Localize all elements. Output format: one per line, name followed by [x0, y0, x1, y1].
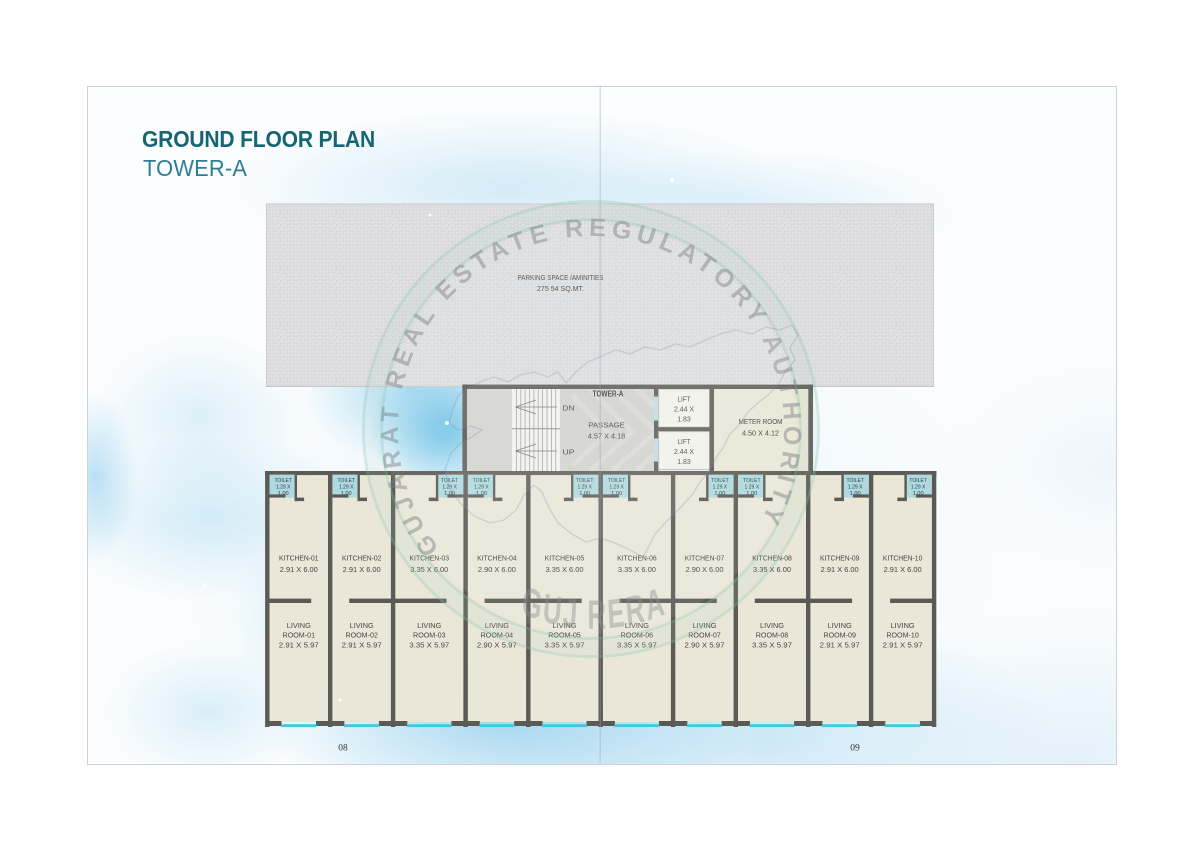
svg-text:2.91 X 5.97: 2.91 X 5.97: [883, 641, 923, 650]
svg-text:LIVING: LIVING: [760, 621, 784, 630]
svg-text:1.00: 1.00: [913, 491, 925, 497]
svg-text:2.90 X 5.97: 2.90 X 5.97: [685, 641, 725, 650]
svg-text:1.00: 1.00: [341, 491, 353, 497]
svg-text:LIVING: LIVING: [891, 621, 915, 630]
svg-text:LIVING: LIVING: [350, 621, 374, 630]
svg-text:ROOM-03: ROOM-03: [413, 631, 446, 640]
svg-text:2.91 X 6.00: 2.91 X 6.00: [343, 565, 381, 574]
svg-text:TOILET: TOILET: [337, 478, 355, 484]
svg-text:KITCHEN-01: KITCHEN-01: [279, 554, 319, 563]
svg-text:ROOM-08: ROOM-08: [756, 631, 789, 640]
svg-text:2.91 X 5.97: 2.91 X 5.97: [279, 641, 319, 650]
svg-text:1.29 X: 1.29 X: [339, 484, 354, 490]
svg-text:2.91 X 6.00: 2.91 X 6.00: [884, 565, 922, 574]
svg-text:ROOM-10: ROOM-10: [886, 631, 919, 640]
svg-text:KITCHEN-10: KITCHEN-10: [883, 554, 923, 563]
svg-text:LIVING: LIVING: [417, 621, 441, 630]
svg-text:ROOM-02: ROOM-02: [345, 631, 378, 640]
svg-text:2.91 X 5.97: 2.91 X 5.97: [820, 641, 860, 650]
svg-text:1.29 X: 1.29 X: [276, 484, 291, 490]
svg-text:2.91 X 6.00: 2.91 X 6.00: [280, 565, 318, 574]
svg-text:2.91 X 5.97: 2.91 X 5.97: [342, 641, 382, 650]
svg-text:LIVING: LIVING: [287, 621, 311, 630]
svg-text:1.00: 1.00: [850, 491, 862, 497]
svg-text:KITCHEN-09: KITCHEN-09: [820, 554, 860, 563]
svg-text:09: 09: [850, 744, 860, 754]
svg-text:2.91 X 6.00: 2.91 X 6.00: [821, 565, 859, 574]
svg-text:1.29 X: 1.29 X: [911, 484, 926, 490]
svg-text:KITCHEN-02: KITCHEN-02: [342, 554, 382, 563]
svg-text:LIVING: LIVING: [828, 621, 852, 630]
svg-text:3.35 X 5.97: 3.35 X 5.97: [409, 641, 449, 650]
svg-text:TOILET: TOILET: [274, 478, 292, 484]
svg-text:ROOM-09: ROOM-09: [823, 631, 856, 640]
svg-text:3.35 X 5.97: 3.35 X 5.97: [752, 641, 792, 650]
svg-text:1.29 X: 1.29 X: [848, 484, 863, 490]
svg-text:TOILET: TOILET: [909, 478, 927, 484]
svg-text:1.00: 1.00: [278, 491, 290, 497]
svg-text:ROOM-01: ROOM-01: [283, 631, 316, 640]
svg-text:08: 08: [338, 744, 348, 754]
svg-text:TOILET: TOILET: [846, 478, 864, 484]
